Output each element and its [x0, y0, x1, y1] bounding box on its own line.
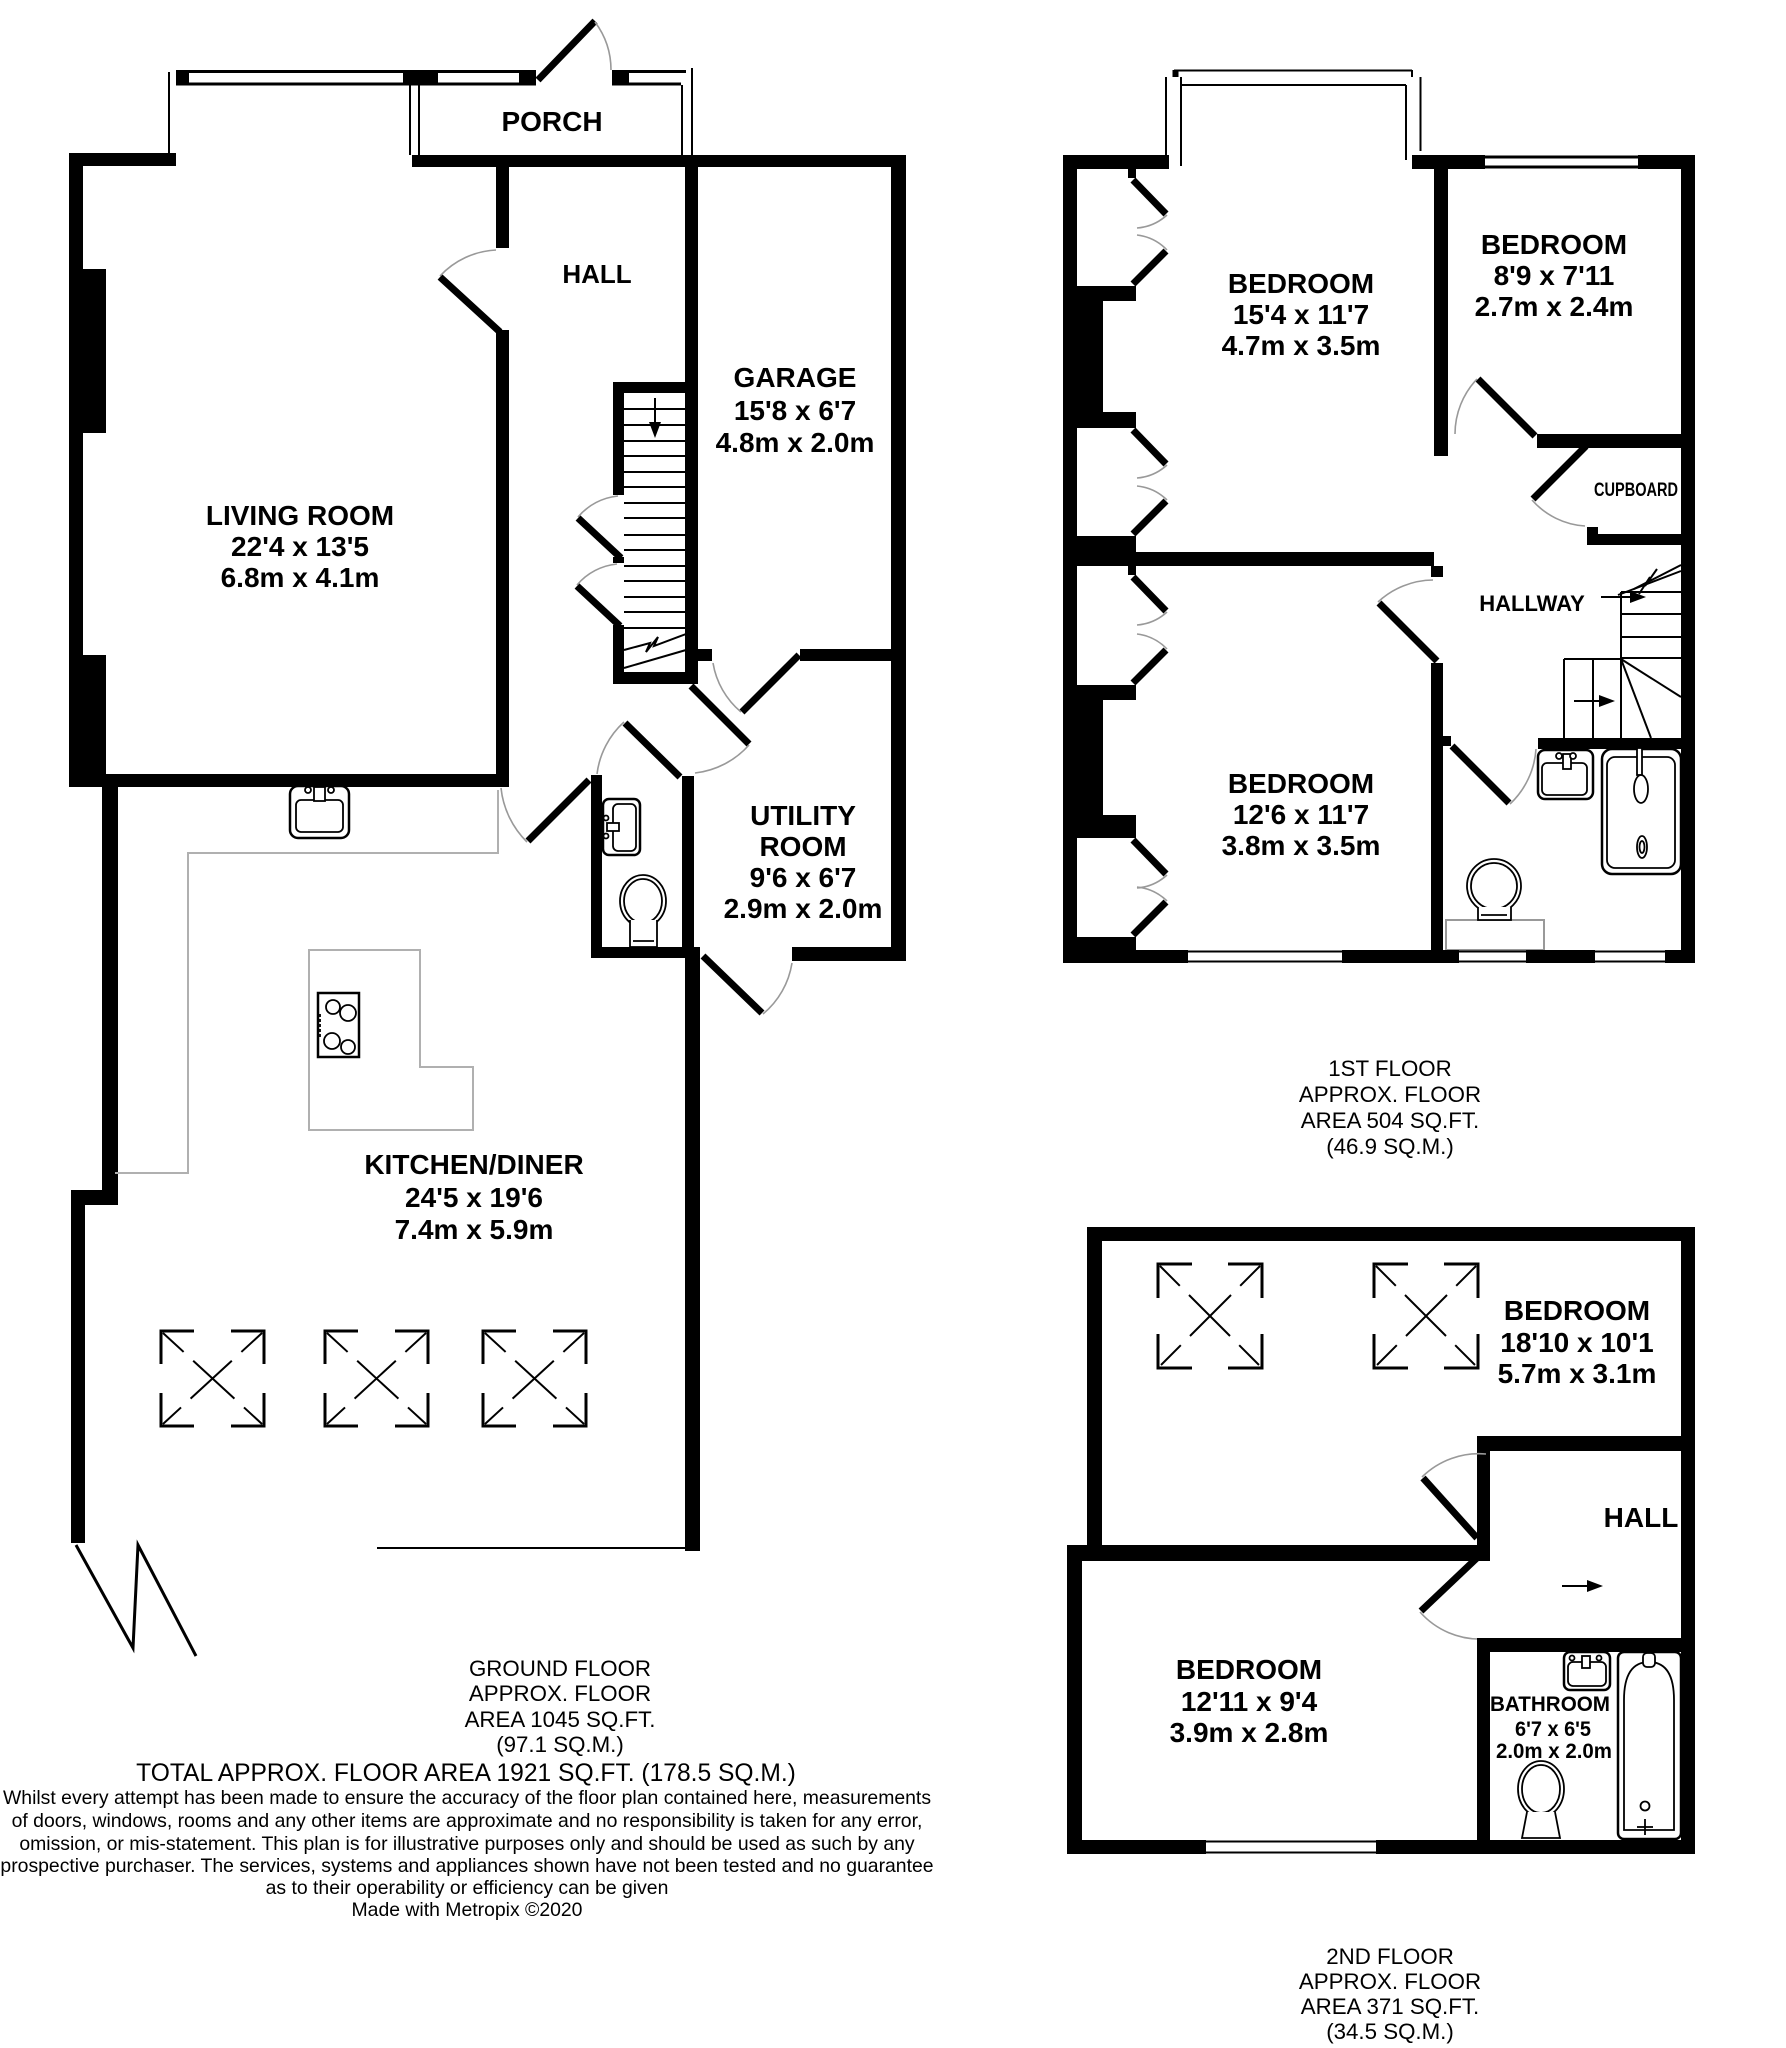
svg-text:15'4 x 11'7: 15'4 x 11'7 [1233, 299, 1369, 330]
svg-text:AREA 371 SQ.FT.: AREA 371 SQ.FT. [1301, 1994, 1479, 2019]
svg-text:as to their operability or eff: as to their operability or efficiency ca… [266, 1877, 669, 1899]
svg-text:6'7 x 6'5: 6'7 x 6'5 [1515, 1718, 1591, 1741]
svg-text:BATHROOM: BATHROOM [1490, 1693, 1610, 1716]
svg-text:HALLWAY: HALLWAY [1479, 591, 1585, 616]
svg-text:5.7m x 3.1m: 5.7m x 3.1m [1498, 1358, 1657, 1389]
svg-text:2.0m x 2.0m: 2.0m x 2.0m [1496, 1740, 1612, 1763]
svg-text:APPROX. FLOOR: APPROX. FLOOR [469, 1681, 651, 1706]
svg-text:3.9m x 2.8m: 3.9m x 2.8m [1170, 1717, 1329, 1748]
svg-text:BEDROOM: BEDROOM [1176, 1654, 1322, 1685]
svg-text:APPROX. FLOOR: APPROX. FLOOR [1299, 1969, 1481, 1994]
svg-text:15'8 x 6'7: 15'8 x 6'7 [734, 395, 856, 426]
svg-text:3.8m x 3.5m: 3.8m x 3.5m [1222, 830, 1381, 861]
svg-text:2ND FLOOR: 2ND FLOOR [1326, 1944, 1454, 1969]
svg-text:BEDROOM: BEDROOM [1504, 1295, 1650, 1326]
svg-text:AREA 1045 SQ.FT.: AREA 1045 SQ.FT. [465, 1707, 656, 1732]
svg-text:12'11 x 9'4: 12'11 x 9'4 [1181, 1686, 1318, 1717]
svg-text:LIVING ROOM: LIVING ROOM [206, 500, 394, 531]
svg-text:ROOM: ROOM [759, 831, 846, 862]
svg-text:2.7m x 2.4m: 2.7m x 2.4m [1475, 291, 1634, 322]
svg-text:APPROX. FLOOR: APPROX. FLOOR [1299, 1082, 1481, 1107]
svg-text:omission, or mis-statement. Th: omission, or mis-statement. This plan is… [19, 1833, 915, 1855]
svg-text:PORCH: PORCH [501, 106, 602, 137]
svg-text:12'6 x 11'7: 12'6 x 11'7 [1233, 799, 1369, 830]
svg-text:HALL: HALL [562, 259, 631, 289]
svg-text:(34.5 SQ.M.): (34.5 SQ.M.) [1326, 2019, 1454, 2044]
svg-text:KITCHEN/DINER: KITCHEN/DINER [364, 1149, 583, 1180]
svg-text:Made with Metropix ©2020: Made with Metropix ©2020 [352, 1899, 583, 1921]
svg-text:TOTAL APPROX. FLOOR AREA 1921: TOTAL APPROX. FLOOR AREA 1921 SQ.FT. (17… [136, 1760, 796, 1787]
svg-text:9'6 x 6'7: 9'6 x 6'7 [750, 862, 857, 893]
svg-text:1ST FLOOR: 1ST FLOOR [1328, 1056, 1452, 1081]
svg-text:GARAGE: GARAGE [734, 362, 857, 393]
svg-text:4.7m x 3.5m: 4.7m x 3.5m [1222, 330, 1381, 361]
svg-text:Whilst every attempt has been: Whilst every attempt has been made to en… [3, 1787, 931, 1809]
svg-text:4.8m x 2.0m: 4.8m x 2.0m [716, 427, 875, 458]
svg-text:7.4m x 5.9m: 7.4m x 5.9m [395, 1214, 554, 1245]
svg-text:18'10 x 10'1: 18'10 x 10'1 [1500, 1327, 1653, 1358]
svg-text:22'4 x 13'5: 22'4 x 13'5 [231, 531, 369, 562]
svg-text:8'9 x 7'11: 8'9 x 7'11 [1494, 260, 1615, 291]
svg-text:6.8m x 4.1m: 6.8m x 4.1m [221, 562, 380, 593]
svg-text:GROUND FLOOR: GROUND FLOOR [469, 1656, 651, 1681]
svg-text:CUPBOARD: CUPBOARD [1594, 480, 1678, 501]
svg-text:AREA 504 SQ.FT.: AREA 504 SQ.FT. [1301, 1108, 1479, 1133]
svg-text:(46.9 SQ.M.): (46.9 SQ.M.) [1326, 1134, 1454, 1159]
svg-text:BEDROOM: BEDROOM [1481, 229, 1627, 260]
svg-text:prospective purchaser. The ser: prospective purchaser. The services, sys… [0, 1855, 933, 1877]
svg-text:of doors, windows, rooms and a: of doors, windows, rooms and any other i… [12, 1810, 923, 1832]
svg-text:HALL: HALL [1604, 1502, 1679, 1533]
svg-text:BEDROOM: BEDROOM [1228, 768, 1374, 799]
svg-text:2.9m x 2.0m: 2.9m x 2.0m [724, 893, 883, 924]
svg-text:BEDROOM: BEDROOM [1228, 268, 1374, 299]
svg-text:24'5 x 19'6: 24'5 x 19'6 [405, 1182, 543, 1213]
svg-text:UTILITY: UTILITY [750, 800, 856, 831]
svg-text:(97.1 SQ.M.): (97.1 SQ.M.) [496, 1732, 624, 1757]
